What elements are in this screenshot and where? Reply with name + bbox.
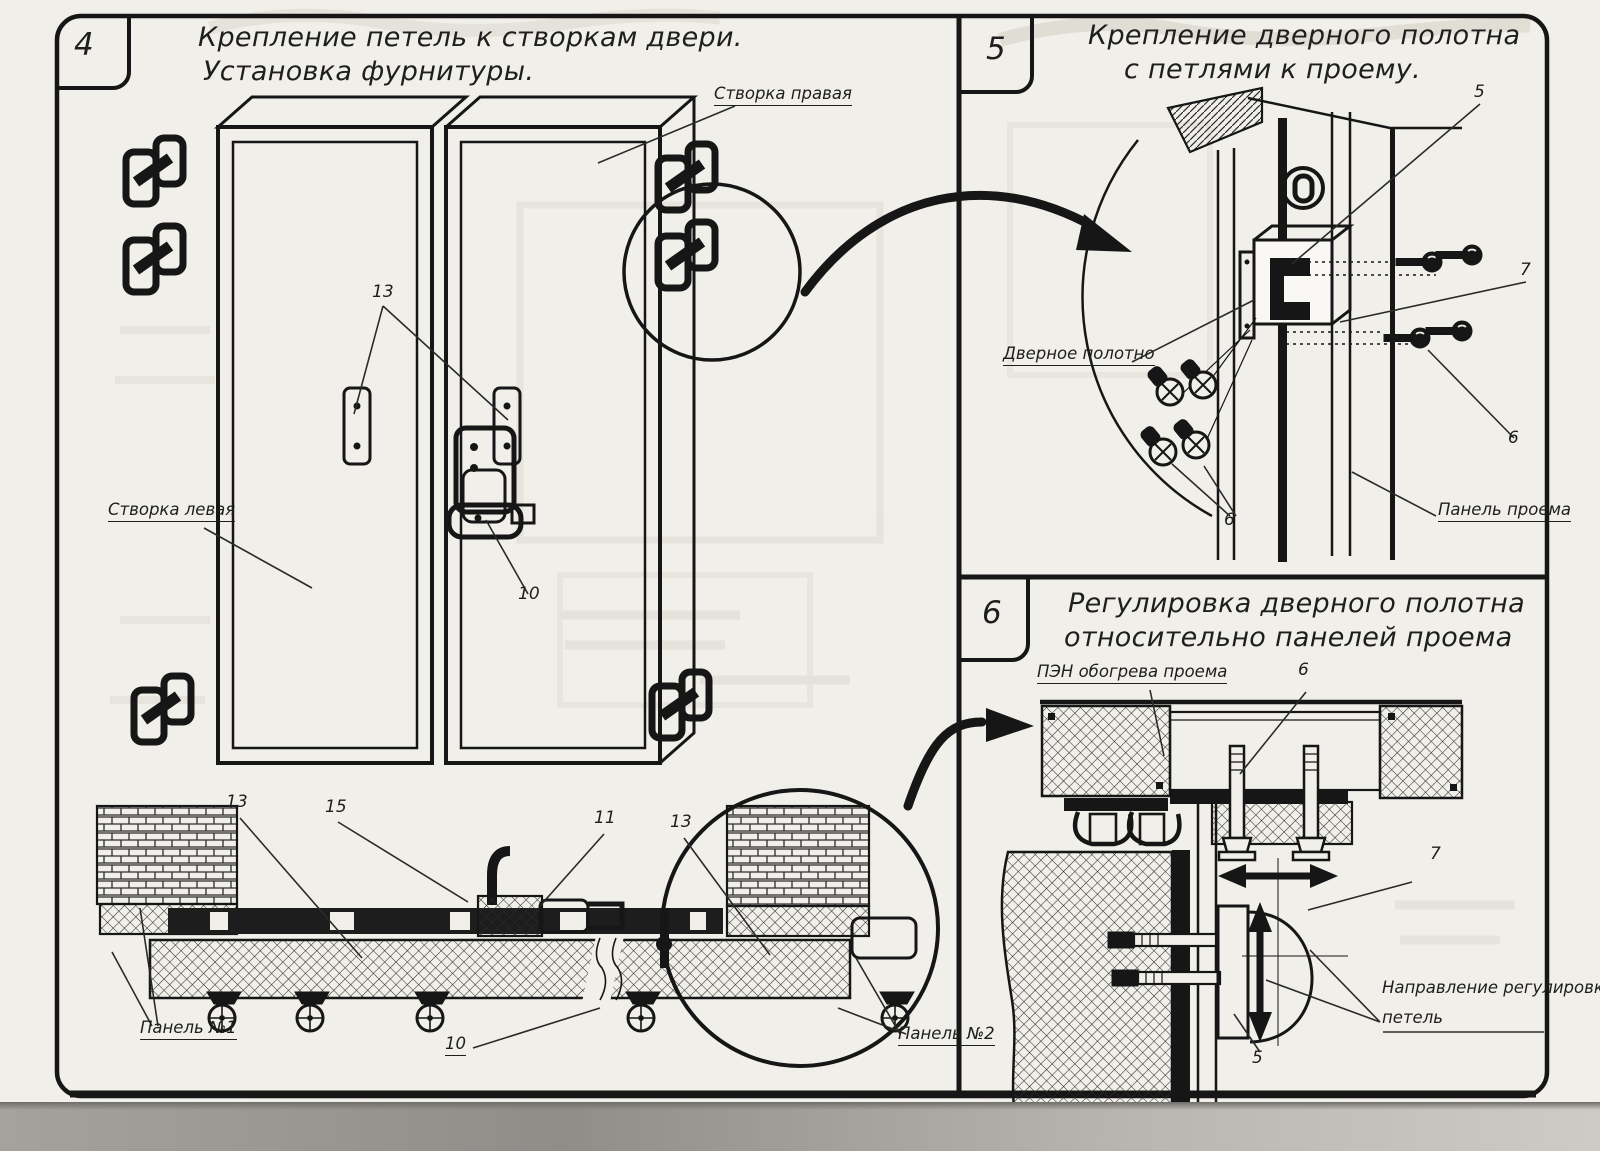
- panel6-title-line2: относительно панелей проема: [1064, 624, 1512, 651]
- panel4-title-line1: Крепление петель к створкам двери.: [198, 24, 743, 51]
- callout-15-lever: 15: [325, 799, 347, 816]
- callout-6-screws-left: 6: [1224, 512, 1235, 529]
- callout-11-bracket: 11: [594, 810, 616, 827]
- panel4-doors-drawing: [126, 97, 800, 763]
- label-leaf-right: Створка правая: [714, 86, 852, 106]
- sheet-linework: [0, 0, 1600, 1151]
- callout-7-hinge-screw: 7: [1430, 846, 1441, 863]
- callout-6-screw-right: 6: [1508, 430, 1519, 447]
- callout-13-frame-right: 13: [670, 814, 692, 831]
- drawing-sheet: 4 Крепление петель к створкам двери. Уст…: [0, 0, 1600, 1151]
- callout-13-frame-left: 13: [226, 794, 248, 811]
- label-door-leaf: Дверное полотно: [1003, 346, 1155, 366]
- panel4-number: 4: [74, 30, 94, 61]
- label-pen-heater: ПЭН обогрева проема: [1037, 664, 1227, 684]
- panel6-title-line1: Регулировка дверного полотна: [1068, 590, 1525, 617]
- label-direction-line2: петель: [1382, 1010, 1443, 1027]
- callout-5-hinge-plate: 5: [1252, 1050, 1263, 1067]
- panel5-drawing: [805, 88, 1482, 562]
- panel6-number: 6: [982, 598, 1002, 629]
- label-panel-2: Панель №2: [898, 1026, 995, 1046]
- panel5-title-line2: с петлями к проему.: [1124, 56, 1421, 83]
- panel4-title-line2: Установка фурнитуры.: [203, 58, 534, 85]
- callout-5-hinge: 5: [1474, 84, 1485, 101]
- callout-13-hinge-plates: 13: [372, 284, 394, 301]
- label-direction-line1: Направление регулировки: [1382, 980, 1600, 997]
- label-panel-1: Панель №1: [140, 1020, 237, 1040]
- callout-10-latch-bottom: 10: [445, 1036, 466, 1056]
- label-leaf-left: Створка левая: [108, 502, 235, 522]
- panel5-number: 5: [986, 34, 1006, 65]
- label-opening-panel: Панель проема: [1438, 502, 1571, 522]
- panel6-drawing: [908, 702, 1462, 1151]
- scan-edge-band: [0, 1102, 1600, 1151]
- panel5-title-line1: Крепление дверного полотна: [1088, 22, 1520, 49]
- callout-6-bolt: 6: [1298, 662, 1309, 679]
- callout-7-screw-pack: 7: [1520, 262, 1531, 279]
- callout-10-handle: 10: [518, 586, 540, 603]
